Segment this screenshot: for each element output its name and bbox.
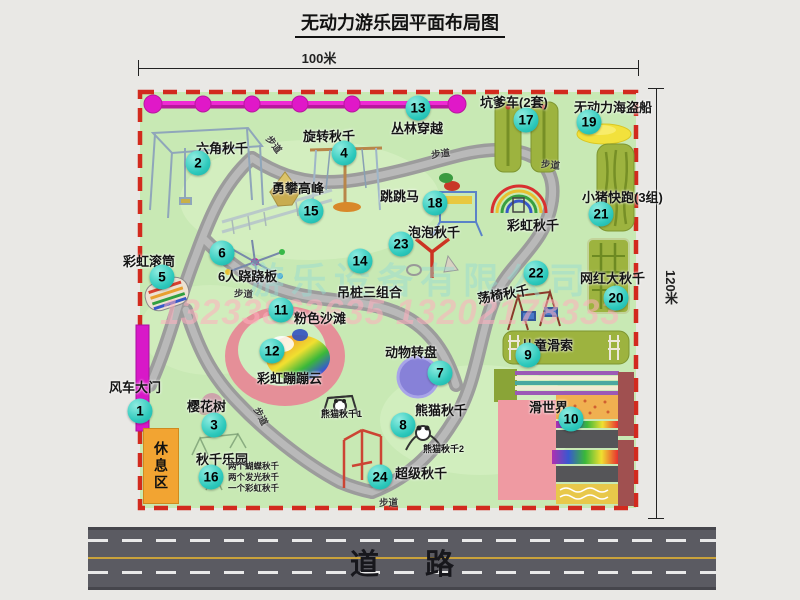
poi-marker-6: 6 — [210, 241, 235, 266]
poi-label-6: 6人跷跷板 — [218, 266, 277, 285]
poi-marker-16: 16 — [199, 465, 224, 490]
poi-marker-7: 7 — [428, 361, 453, 386]
poi-marker-15: 15 — [299, 199, 324, 224]
screenshot-canvas: 无动力游乐园平面布局图 100米 120米 — [0, 0, 800, 600]
poi-marker-22: 22 — [524, 261, 549, 286]
poi-marker-12: 12 — [260, 339, 285, 364]
poi-marker-11: 11 — [269, 298, 294, 323]
poi-label-15: 勇攀高峰 — [272, 178, 324, 197]
poi-label-18: 跳跳马 — [380, 186, 419, 205]
poi-label-20: 网红大秋千 — [580, 268, 645, 287]
poi-label-17: 坑爹车(2套) — [480, 92, 548, 111]
poi-marker-17: 17 — [514, 108, 539, 133]
poi-marker-2: 2 — [186, 151, 211, 176]
road-label: 道路 — [88, 541, 716, 583]
footpath-label: 步道 — [540, 156, 560, 172]
road: 道路 — [88, 527, 716, 590]
poi-label-24: 超级秋千 — [395, 463, 447, 482]
poi-marker-4: 4 — [332, 141, 357, 166]
footpath-label: 步道 — [234, 285, 254, 300]
poi-marker-23: 23 — [389, 232, 414, 257]
poi-marker-19: 19 — [577, 110, 602, 135]
poi-label-23: 泡泡秋千 — [408, 222, 460, 241]
poi-marker-8: 8 — [391, 413, 416, 438]
poi-label-13: 丛林穿越 — [391, 118, 443, 137]
poi-marker-20: 20 — [604, 286, 629, 311]
poi-marker-3: 3 — [202, 413, 227, 438]
footpath-label: 步道 — [430, 145, 451, 162]
panda-swing-1-label: 熊猫秋千1 — [321, 407, 362, 420]
poi-marker-13: 13 — [406, 96, 431, 121]
swing-park-note-3: 一个彩虹秋千 — [228, 483, 279, 494]
poi-marker-5: 5 — [150, 265, 175, 290]
poi-marker-18: 18 — [423, 191, 448, 216]
poi-marker-21: 21 — [589, 202, 614, 227]
poi-marker-9: 9 — [516, 343, 541, 368]
swing-park-note-2: 两个发光秋千 — [228, 472, 279, 483]
poi-label-3: 樱花树 — [187, 396, 226, 415]
poi-marker-24: 24 — [368, 465, 393, 490]
poi-label-11: 粉色沙滩 — [294, 308, 346, 327]
poi-label-14: 吊桩三组合 — [337, 282, 402, 301]
footpath-label: 步道 — [379, 495, 398, 509]
poi-label-1: 风车大门 — [109, 377, 161, 396]
poi-label-8: 熊猫秋千 — [415, 400, 467, 419]
slide-world-icon — [494, 369, 634, 506]
panda-swing-2-label: 熊猫秋千2 — [423, 442, 464, 455]
poi-label-12: 彩虹蹦蹦云 — [257, 368, 322, 387]
rainbow-swing-label: 彩虹秋千 — [507, 215, 559, 234]
poi-marker-1: 1 — [128, 399, 153, 424]
poi-marker-14: 14 — [348, 249, 373, 274]
swing-park-notes: 两个蝴蝶秋千 两个发光秋千 一个彩虹秋千 — [228, 461, 279, 494]
rest-area-label: 休息区 — [151, 441, 171, 492]
poi-marker-10: 10 — [559, 407, 584, 432]
rest-area: 休息区 — [143, 428, 179, 504]
swing-park-note-1: 两个蝴蝶秋千 — [228, 461, 279, 472]
poi-label-7: 动物转盘 — [385, 342, 437, 361]
